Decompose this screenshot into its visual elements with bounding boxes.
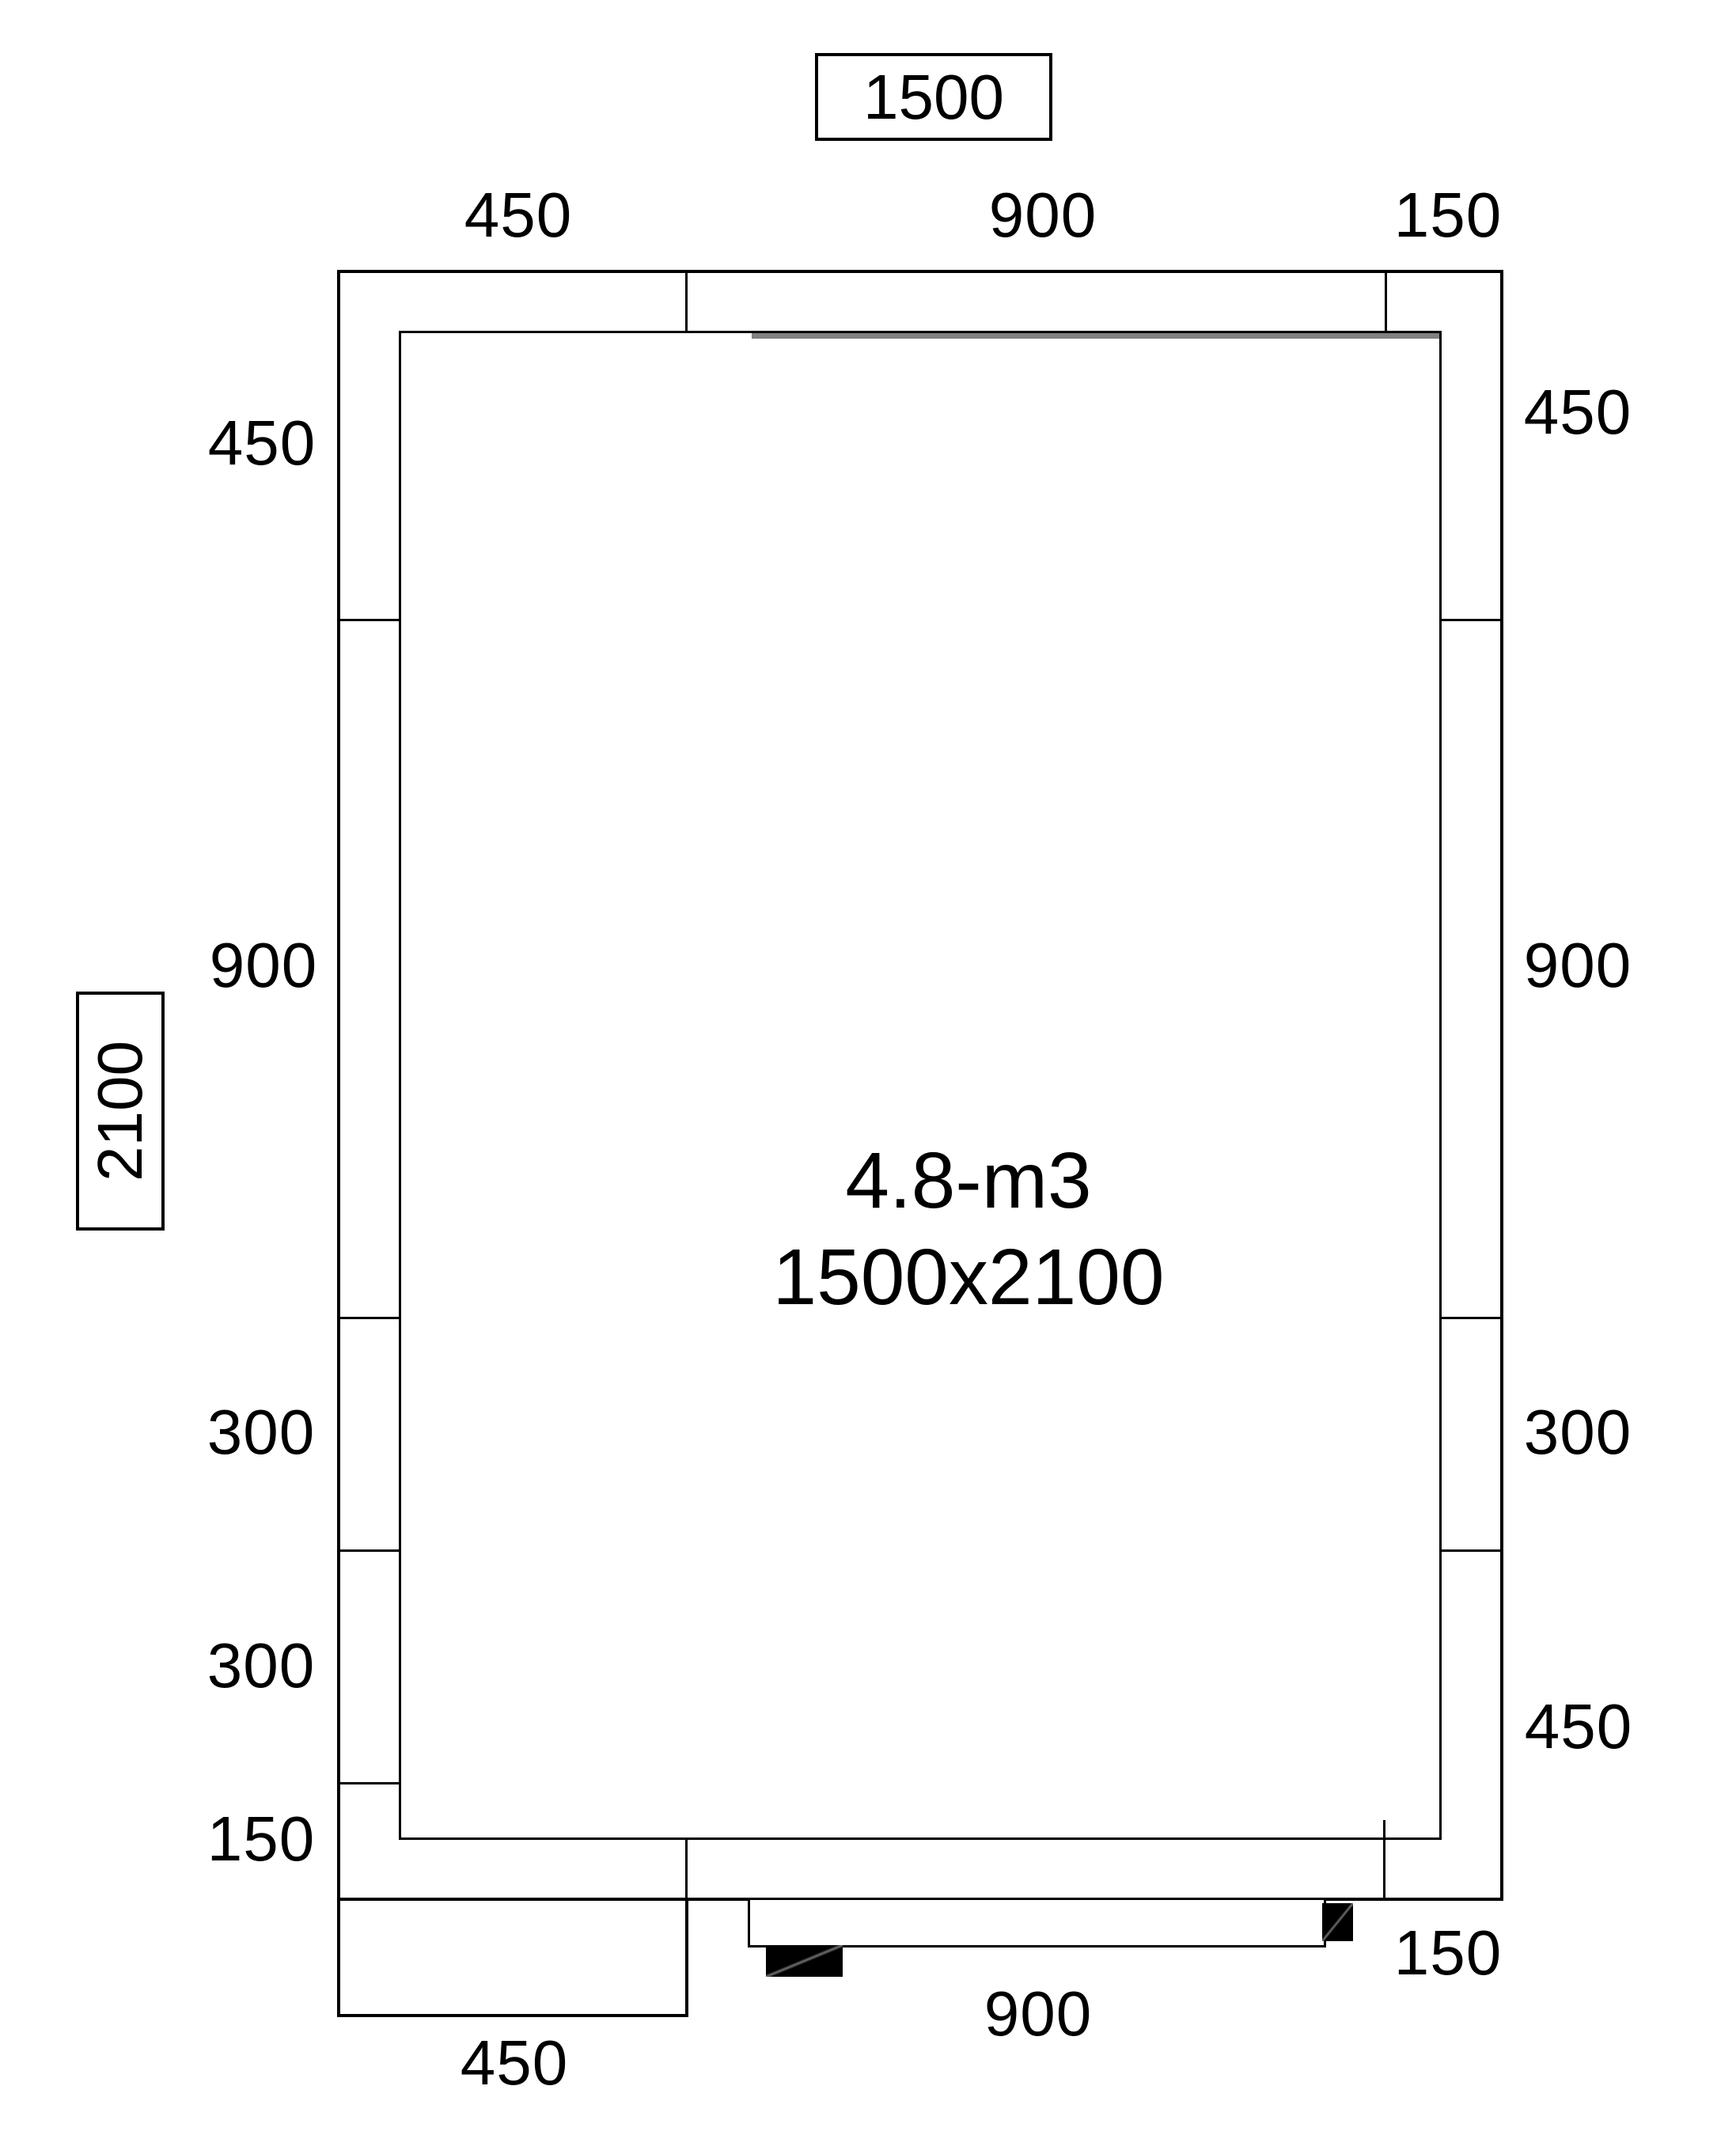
dim-left-450: 450 [208, 411, 316, 475]
dim-left-300b: 300 [207, 1634, 315, 1697]
room-volume-label: 4.8-m3 [773, 1132, 1165, 1229]
bottom-left-panel [337, 1898, 688, 2017]
dim-bottom-900: 900 [984, 1982, 1092, 2046]
wall-divider [1439, 619, 1500, 621]
floorplan-drawing: 1500 2100 4.8-m3 1500x2100 450 900 150 4… [0, 0, 1736, 2139]
dim-top-900: 900 [989, 184, 1097, 247]
overall-height-label: 2100 [84, 1041, 157, 1181]
dim-left-900: 900 [210, 934, 317, 997]
wall-divider [340, 1317, 401, 1319]
hinge-diagonal [766, 1945, 843, 1977]
dim-bottom-450: 450 [461, 2031, 568, 2095]
dim-right-450a: 450 [1524, 381, 1632, 444]
dim-left-300a: 300 [207, 1401, 315, 1464]
wall-divider [340, 1782, 401, 1784]
wall-divider [1385, 271, 1387, 333]
wall-divider [685, 271, 688, 333]
dim-right-900: 900 [1524, 934, 1632, 997]
door-hinge-block [766, 1945, 843, 1977]
inner-wall [399, 331, 1442, 1840]
dim-bottom-150: 150 [1394, 1921, 1502, 1985]
wall-divider [1383, 1820, 1385, 1899]
wall-divider [340, 619, 401, 621]
room-label: 4.8-m3 1500x2100 [773, 1132, 1165, 1325]
dim-right-300: 300 [1524, 1401, 1632, 1464]
dim-right-450b: 450 [1525, 1695, 1632, 1758]
overall-height-box: 2100 [76, 992, 165, 1231]
room-size-label: 1500x2100 [773, 1229, 1165, 1325]
wall-divider [685, 1837, 688, 1899]
wall-divider [1439, 1549, 1500, 1552]
wall-divider [340, 1549, 401, 1552]
lock-diagonal [1322, 1903, 1353, 1941]
door-lock-block [1322, 1903, 1353, 1941]
overall-width-box: 1500 [815, 53, 1052, 141]
dim-top-150: 150 [1394, 184, 1502, 247]
wall-divider [1439, 1317, 1500, 1319]
dim-top-450: 450 [464, 184, 572, 247]
overall-width-label: 1500 [863, 61, 1004, 134]
dim-left-150: 150 [207, 1807, 315, 1871]
door-leaf [748, 1898, 1326, 1947]
